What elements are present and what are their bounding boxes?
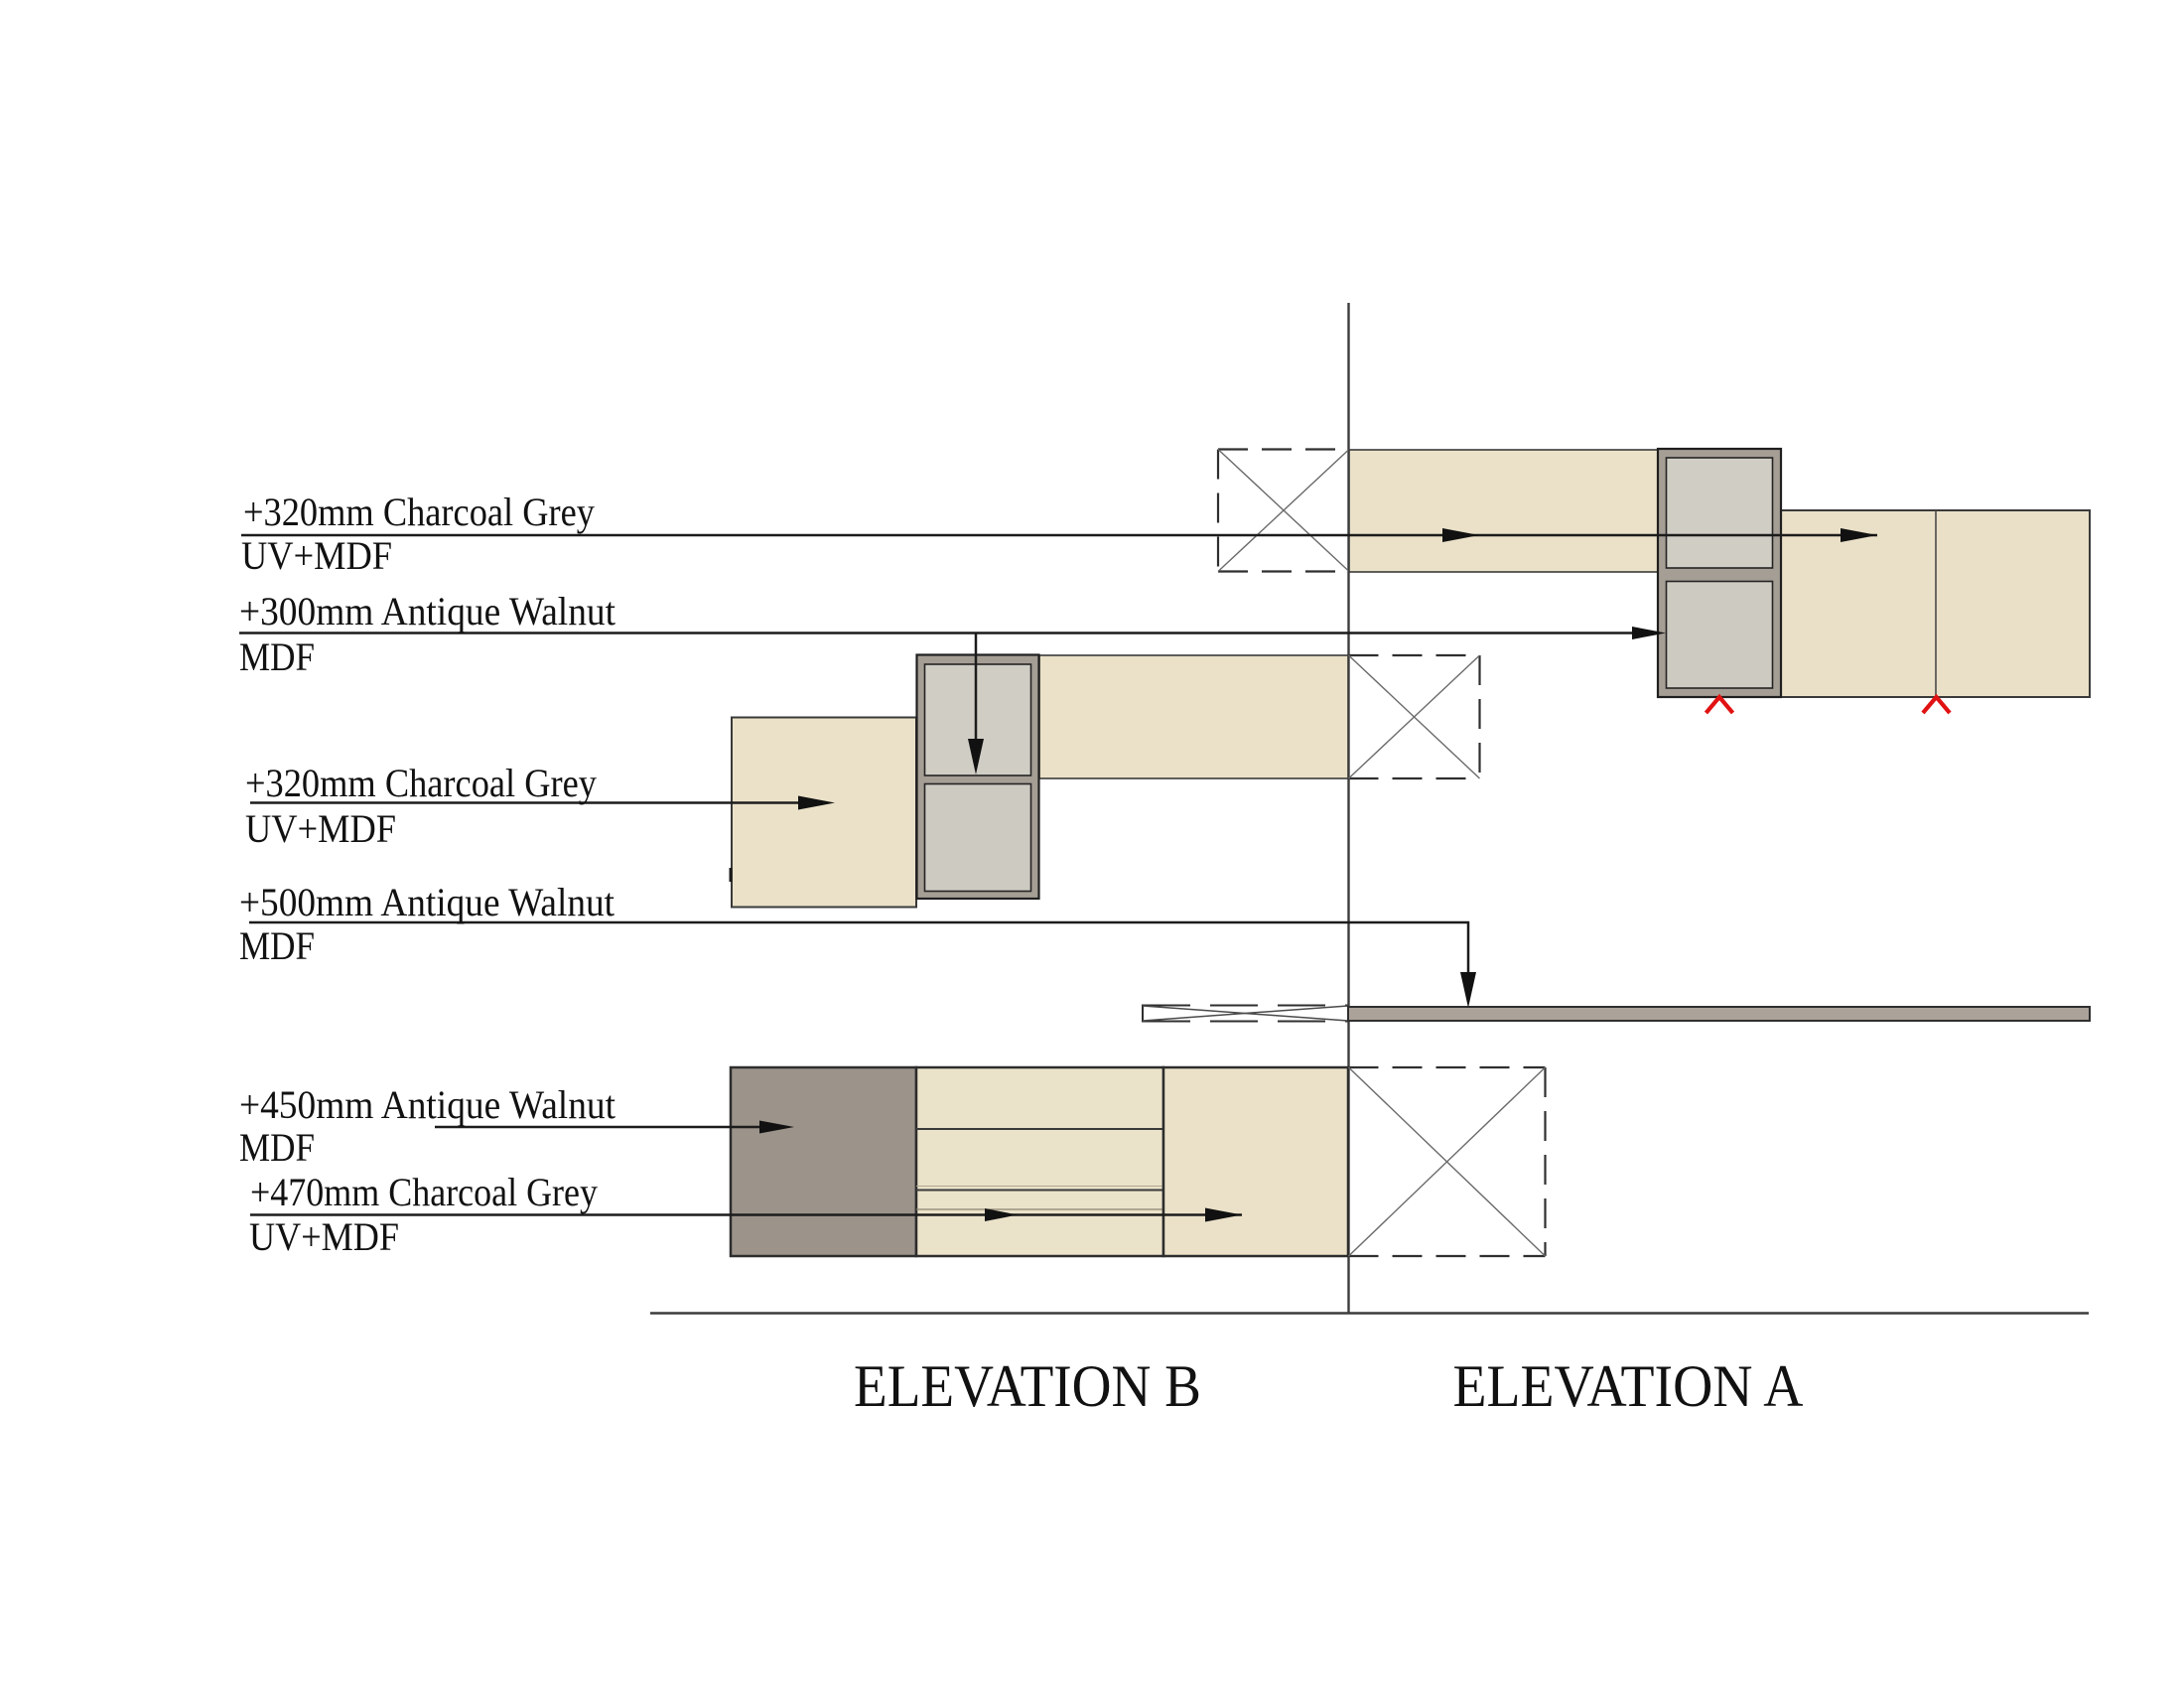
- svg-text:+470mm Charcoal Grey: +470mm Charcoal Grey: [250, 1170, 598, 1214]
- svg-text:ELEVATION B: ELEVATION B: [854, 1353, 1201, 1419]
- svg-text:+500mm Antique Walnut: +500mm Antique Walnut: [239, 880, 614, 924]
- svg-text:+450mm Antique Walnut: +450mm Antique Walnut: [239, 1082, 615, 1127]
- svg-text:ELEVATION A: ELEVATION A: [1453, 1353, 1804, 1419]
- svg-text:+320mm Charcoal Grey: +320mm Charcoal Grey: [243, 490, 595, 534]
- svg-text:MDF: MDF: [239, 634, 315, 679]
- svg-text:UV+MDF: UV+MDF: [241, 533, 392, 578]
- svg-text:UV+MDF: UV+MDF: [245, 806, 396, 851]
- svg-text:+320mm Charcoal Grey: +320mm Charcoal Grey: [245, 761, 597, 805]
- svg-text:UV+MDF: UV+MDF: [249, 1214, 399, 1259]
- svg-text:MDF: MDF: [239, 923, 315, 968]
- svg-text:+300mm Antique Walnut: +300mm Antique Walnut: [239, 589, 615, 633]
- svg-text:MDF: MDF: [239, 1125, 315, 1170]
